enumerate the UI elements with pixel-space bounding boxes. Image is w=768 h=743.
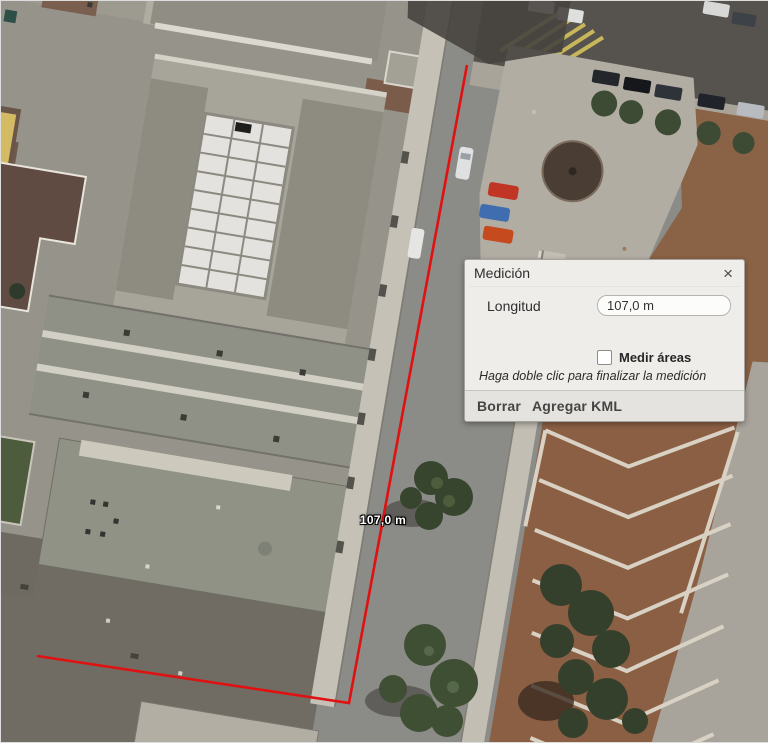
- dialog-title: Medición: [474, 265, 530, 281]
- measure-areas-checkbox[interactable]: [597, 350, 612, 365]
- dialog-hint: Haga doble clic para finalizar la medici…: [479, 369, 735, 383]
- measurement-dialog: Medición × Longitud Medir áreas Haga dob…: [464, 259, 745, 422]
- add-kml-button[interactable]: Agregar KML: [532, 398, 622, 414]
- clear-button[interactable]: Borrar: [477, 398, 521, 414]
- length-label: Longitud: [487, 298, 541, 314]
- close-icon[interactable]: ×: [721, 265, 735, 282]
- dialog-footer: Borrar Agregar KML: [465, 390, 744, 421]
- length-row: Longitud: [470, 295, 739, 317]
- dialog-body: Longitud Medir áreas Haga doble clic par…: [470, 286, 739, 389]
- dialog-titlebar[interactable]: Medición ×: [465, 260, 744, 286]
- length-input[interactable]: [597, 295, 731, 316]
- app-window: 107,0 m Medición × Longitud Medir áreas …: [0, 0, 768, 743]
- measure-areas-label: Medir áreas: [619, 350, 691, 365]
- measure-areas-row: Medir áreas: [597, 349, 691, 365]
